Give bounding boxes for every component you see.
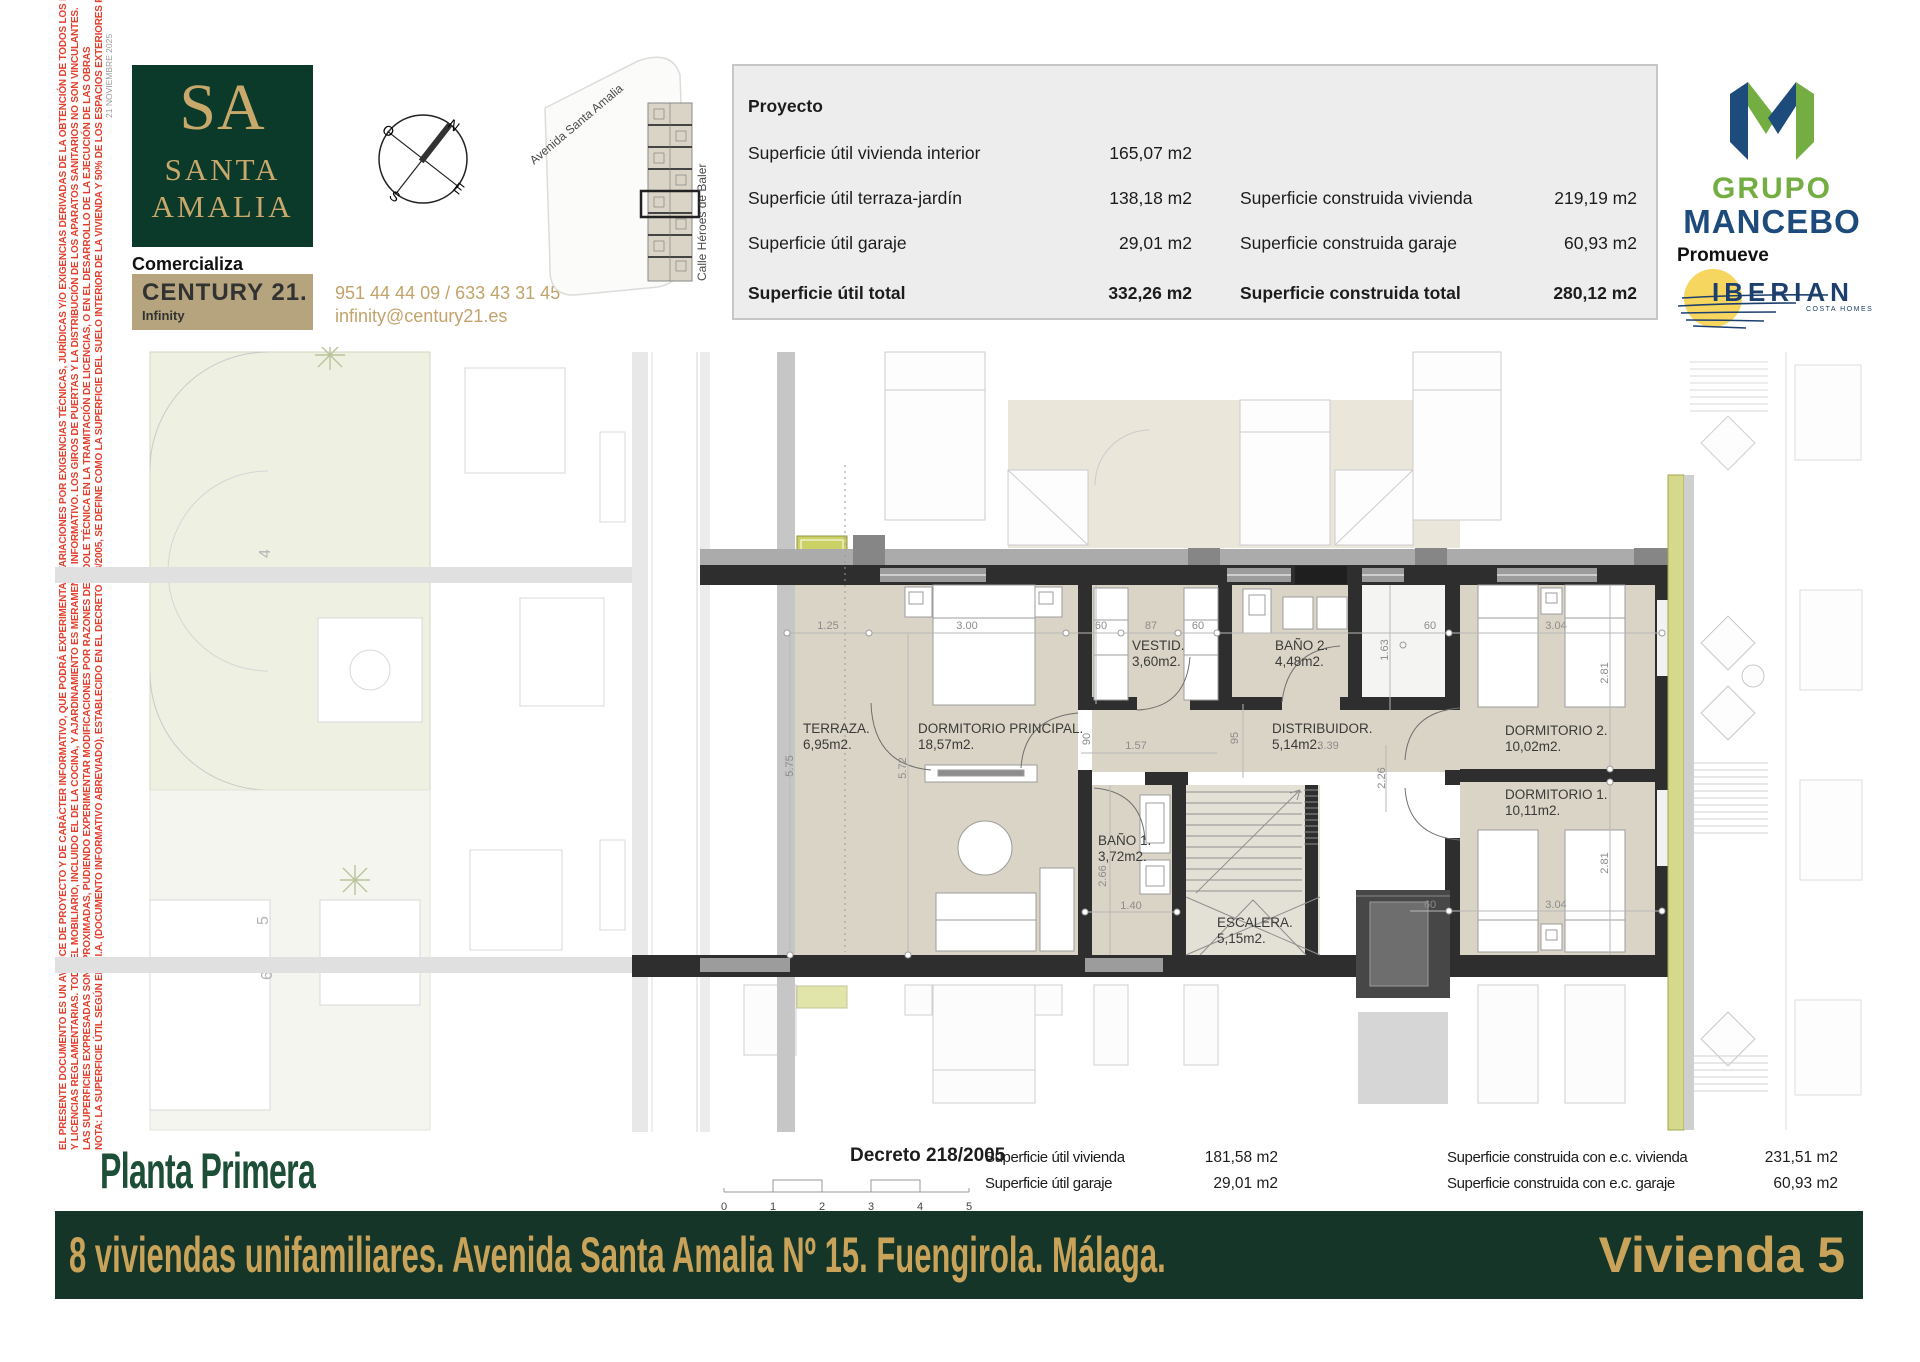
floor-plan-drawing: 4 5 6: [0, 347, 1920, 1135]
svg-text:5.72: 5.72: [897, 757, 909, 778]
wall-faded: [55, 567, 632, 583]
svg-text:2.81: 2.81: [1599, 662, 1611, 683]
svg-text:60: 60: [1424, 620, 1436, 632]
banner-unit-label: Vivienda 5: [1599, 1226, 1845, 1284]
scale-bar: 0 1 2 3 4 5: [708, 1170, 998, 1216]
footer-value: 60,93 m2: [1690, 1175, 1838, 1193]
footer-label: Superficie construida con e.c. vivienda: [1447, 1149, 1727, 1166]
table-value: 138,18 m2: [1012, 188, 1192, 209]
iberian-logo: IBERIAN COSTA HOMES: [1678, 262, 1878, 334]
svg-text:3.00: 3.00: [956, 620, 977, 632]
wall-faded: [55, 957, 632, 973]
hedge-strip: [1668, 475, 1684, 1130]
sa-monogram: SA: [132, 65, 313, 151]
century21-office: Infinity: [142, 308, 313, 323]
svg-text:1.40: 1.40: [1120, 900, 1141, 912]
sa-name-line1: SANTA: [132, 151, 313, 188]
table-value-total: 280,12 m2: [1457, 283, 1637, 304]
wall-bottom-window: [1085, 958, 1163, 972]
svg-text:3,72m2.: 3,72m2.: [1098, 849, 1147, 864]
svg-text:1.57: 1.57: [1125, 740, 1146, 752]
footer-label: Superficie construida con e.c. garaje: [1447, 1175, 1727, 1192]
agency-email[interactable]: infinity@century21.es: [335, 305, 560, 328]
svg-text:3.04: 3.04: [1545, 899, 1566, 911]
table-value-total: 332,26 m2: [1012, 283, 1192, 304]
boundary-wall: [1684, 475, 1694, 1130]
svg-text:2.26: 2.26: [1376, 767, 1388, 788]
right-terrace-furniture: [1701, 352, 1862, 1130]
window: [1657, 790, 1668, 866]
plan-date: 21 NOVIEMBRE 2025: [104, 34, 114, 118]
svg-text:5.75: 5.75: [784, 755, 796, 776]
unit-number: 4: [257, 549, 274, 558]
century21-logo: CENTURY 21. Infinity: [132, 274, 313, 330]
grupo-label: GRUPO: [1672, 172, 1872, 206]
lower-floor-faded: [905, 985, 1625, 1103]
svg-text:3,60m2.: 3,60m2.: [1132, 654, 1181, 669]
sa-name-line2: AMALIA: [132, 188, 313, 225]
svg-text:4,48m2.: 4,48m2.: [1275, 654, 1324, 669]
street-label-calle: Calle Héroes de Baler: [695, 164, 709, 281]
plan-sheet: EL PRESENTE DOCUMENTO ES UN AVANCE DE PR…: [0, 0, 1920, 1362]
room-label-distribuidor: DISTRIBUIDOR.: [1272, 721, 1373, 736]
room-label-dormitorio-principal: DORMITORIO PRINCIPAL.: [918, 721, 1083, 736]
footer-value: 181,58 m2: [1148, 1149, 1278, 1167]
wall-bottom-window: [700, 958, 790, 972]
svg-text:1.63: 1.63: [1379, 639, 1391, 660]
window: [1657, 600, 1668, 676]
grupo-mancebo-logo-icon: [1712, 72, 1832, 172]
svg-text:6,95m2.: 6,95m2.: [803, 737, 852, 752]
room-label-dormitorio-2: DORMITORIO 2.: [1505, 723, 1608, 738]
room-label-terraza: TERRAZA.: [803, 721, 870, 736]
table-value: 60,93 m2: [1457, 233, 1637, 254]
svg-text:3.04: 3.04: [1545, 620, 1566, 632]
upper-floor-faded: [885, 352, 1861, 548]
svg-text:60: 60: [1424, 899, 1436, 911]
comercializa-label: Comercializa: [132, 254, 243, 275]
svg-text:10,02m2.: 10,02m2.: [1505, 739, 1561, 754]
banner-project-address: 8 viviendas unifamiliares. Avenida Santa…: [69, 1226, 1166, 1284]
svg-text:5,15m2.: 5,15m2.: [1217, 931, 1266, 946]
table-value: 165,07 m2: [1012, 143, 1192, 164]
bottom-banner: 8 viviendas unifamiliares. Avenida Santa…: [55, 1211, 1863, 1299]
santa-amalia-logo: SA SANTA AMALIA: [132, 65, 313, 247]
room-label-bano-2: BAÑO 2.: [1275, 638, 1328, 653]
iberian-name: IBERIAN: [1712, 277, 1854, 307]
room-label-escalera: ESCALERA.: [1217, 915, 1293, 930]
table-value: 29,01 m2: [1012, 233, 1192, 254]
svg-text:60: 60: [1095, 620, 1107, 632]
svg-text:10,11m2.: 10,11m2.: [1505, 803, 1560, 818]
footer-value: 29,01 m2: [1148, 1175, 1278, 1193]
floor-title: Planta Primera: [100, 1142, 315, 1200]
iberian-sub: COSTA HOMES: [1806, 306, 1873, 313]
svg-text:1.25: 1.25: [817, 620, 838, 632]
svg-text:18,57m2.: 18,57m2.: [918, 737, 974, 752]
room-label-vestidor: VESTID.: [1132, 638, 1185, 653]
mancebo-label: MANCEBO: [1672, 203, 1872, 241]
century21-name: CENTURY 21.: [142, 274, 313, 308]
room-label-dormitorio-1: DORMITORIO 1.: [1505, 787, 1608, 802]
svg-text:87: 87: [1145, 620, 1157, 632]
svg-text:5,14m2.: 5,14m2.: [1272, 737, 1321, 752]
svg-text:2.81: 2.81: [1599, 852, 1611, 873]
unit-number: 5: [255, 916, 272, 925]
svg-text:2.66: 2.66: [1097, 865, 1109, 886]
svg-text:95: 95: [1229, 732, 1241, 744]
room-label-bano-1: BAÑO 1.: [1098, 833, 1151, 848]
footer-value: 231,51 m2: [1690, 1149, 1838, 1167]
site-location-plan: Avenida Santa Amalia Calle Héroes de Bal…: [520, 53, 725, 303]
project-table-title: Proyecto: [748, 96, 823, 117]
table-value: 219,19 m2: [1457, 188, 1637, 209]
upper-wall-shadow: [700, 549, 1668, 566]
elevator-shaft: [1356, 890, 1450, 1104]
svg-text:60: 60: [1192, 620, 1204, 632]
decreto-label: Decreto 218/2005: [850, 1145, 1005, 1167]
compass-rose-icon: N O S E: [366, 102, 480, 216]
